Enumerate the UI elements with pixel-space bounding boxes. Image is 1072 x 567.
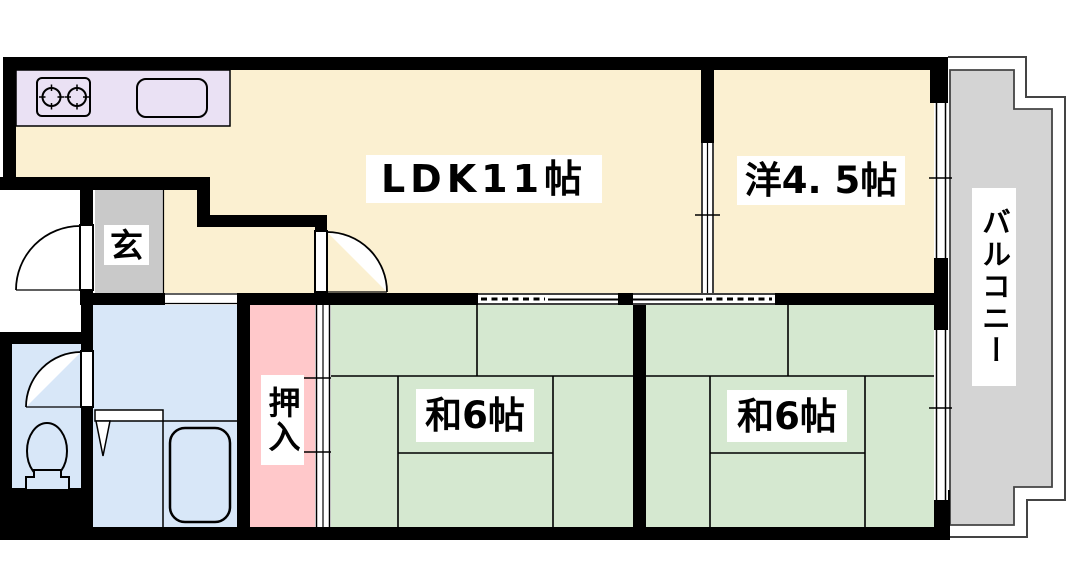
floor-plan-drawing (0, 0, 1072, 567)
sliding-door-ldk-to-room1 (478, 293, 618, 305)
bathtub-icon (170, 428, 230, 522)
closet-label: 押入 (261, 375, 304, 465)
japanese-room-2-label: 和6帖 (727, 390, 847, 442)
sliding-door-ldk-to-room2 (633, 293, 775, 305)
entrance-door (16, 225, 93, 290)
bath-door-track (95, 410, 163, 421)
sink-icon (137, 79, 207, 117)
entrance-label: 玄 (104, 225, 149, 265)
balcony-label: バルコニー (972, 188, 1016, 386)
floor-plan: LDK11帖 洋4. 5帖 和6帖 和6帖 バルコニー 玄 押入 (0, 0, 1072, 567)
western-room-label: 洋4. 5帖 (737, 156, 905, 205)
stove-icon (37, 78, 90, 116)
washroom-opening (165, 293, 237, 305)
ldk-label: LDK11帖 (366, 155, 602, 203)
japanese-room-1-label: 和6帖 (416, 389, 534, 442)
toilet-icon (26, 423, 69, 490)
kitchen-counter (16, 70, 230, 126)
